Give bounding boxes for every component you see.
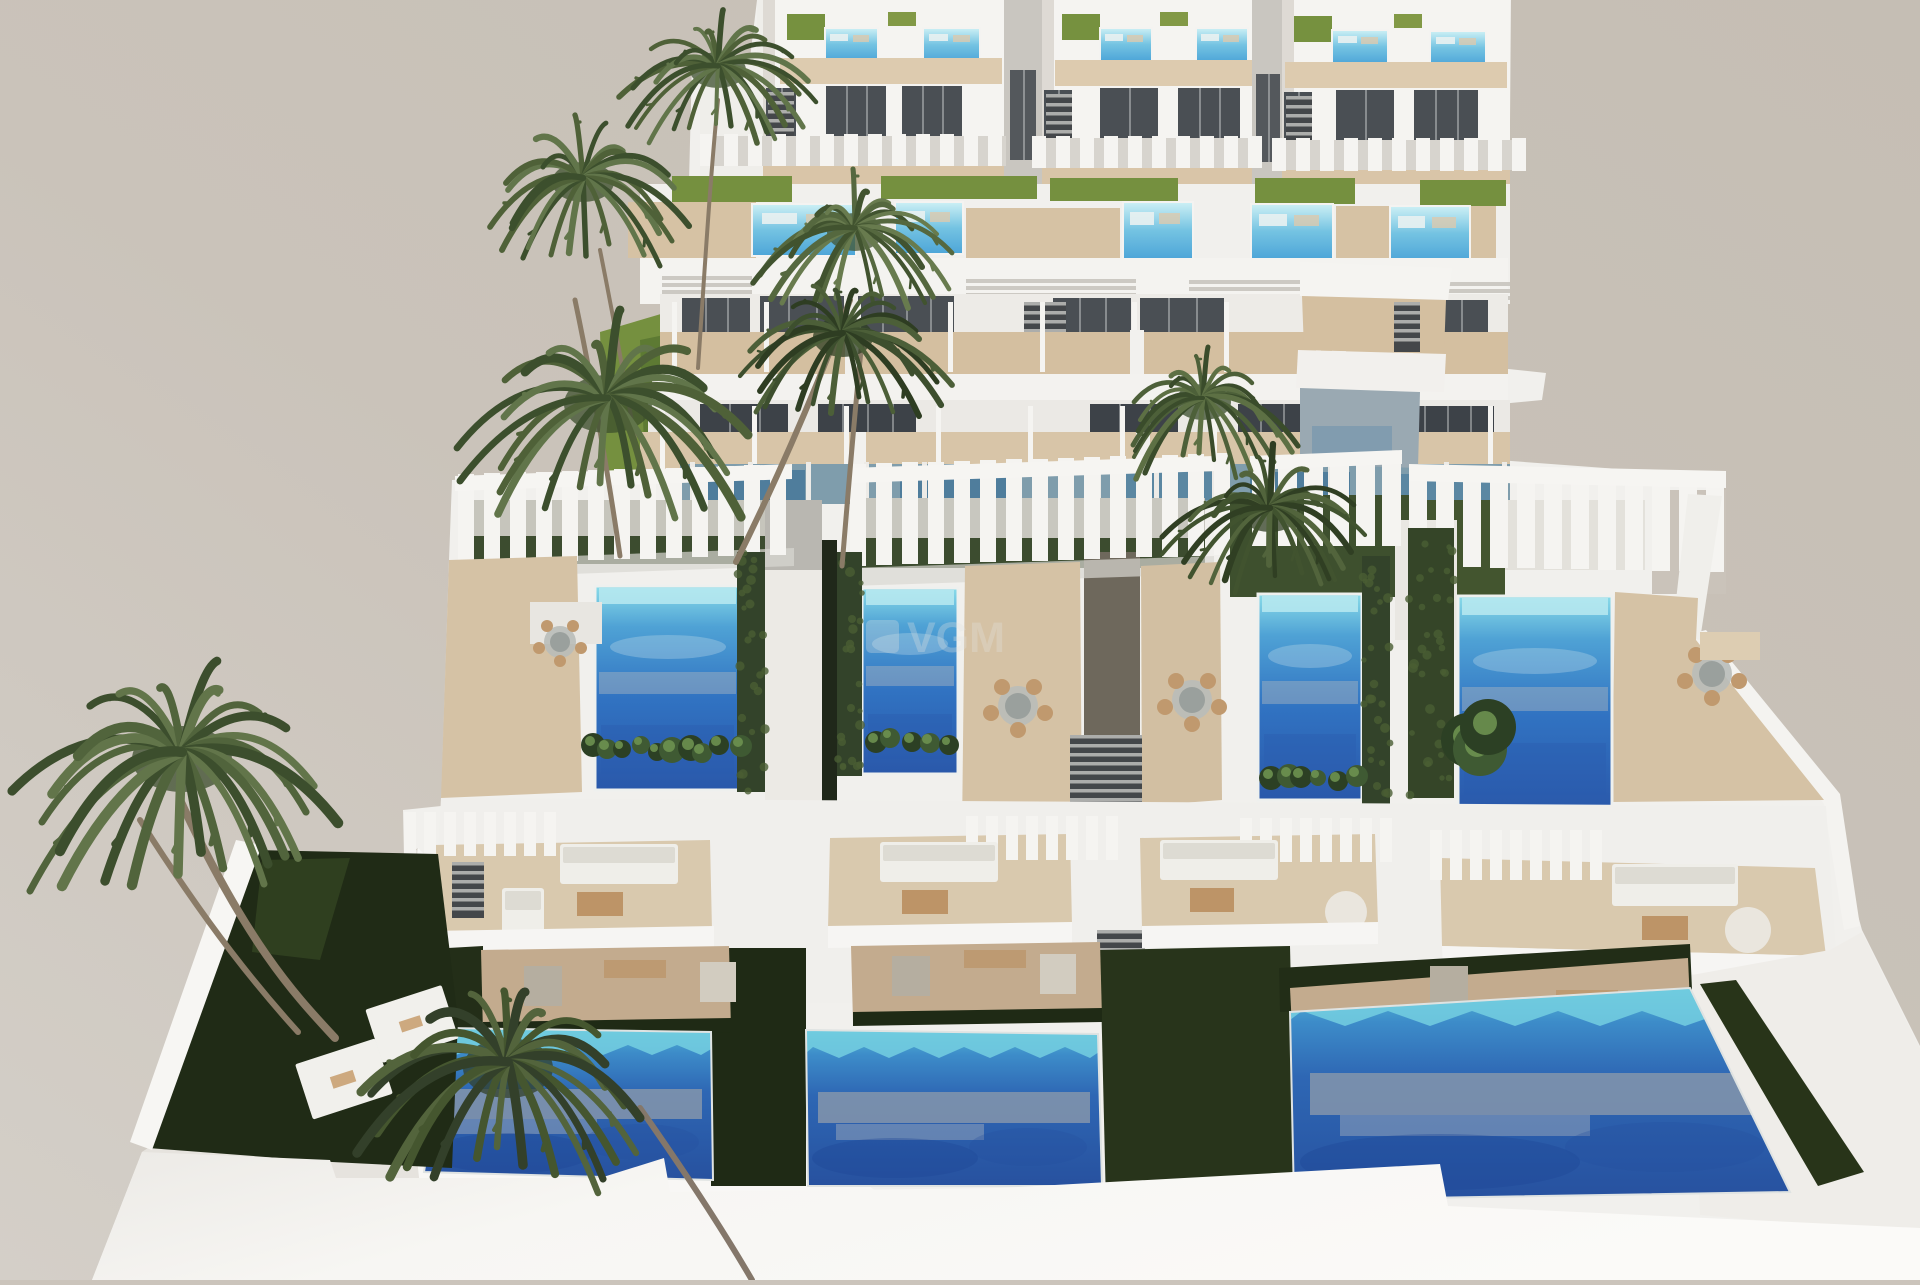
svg-text:VGM: VGM [907, 614, 1005, 662]
